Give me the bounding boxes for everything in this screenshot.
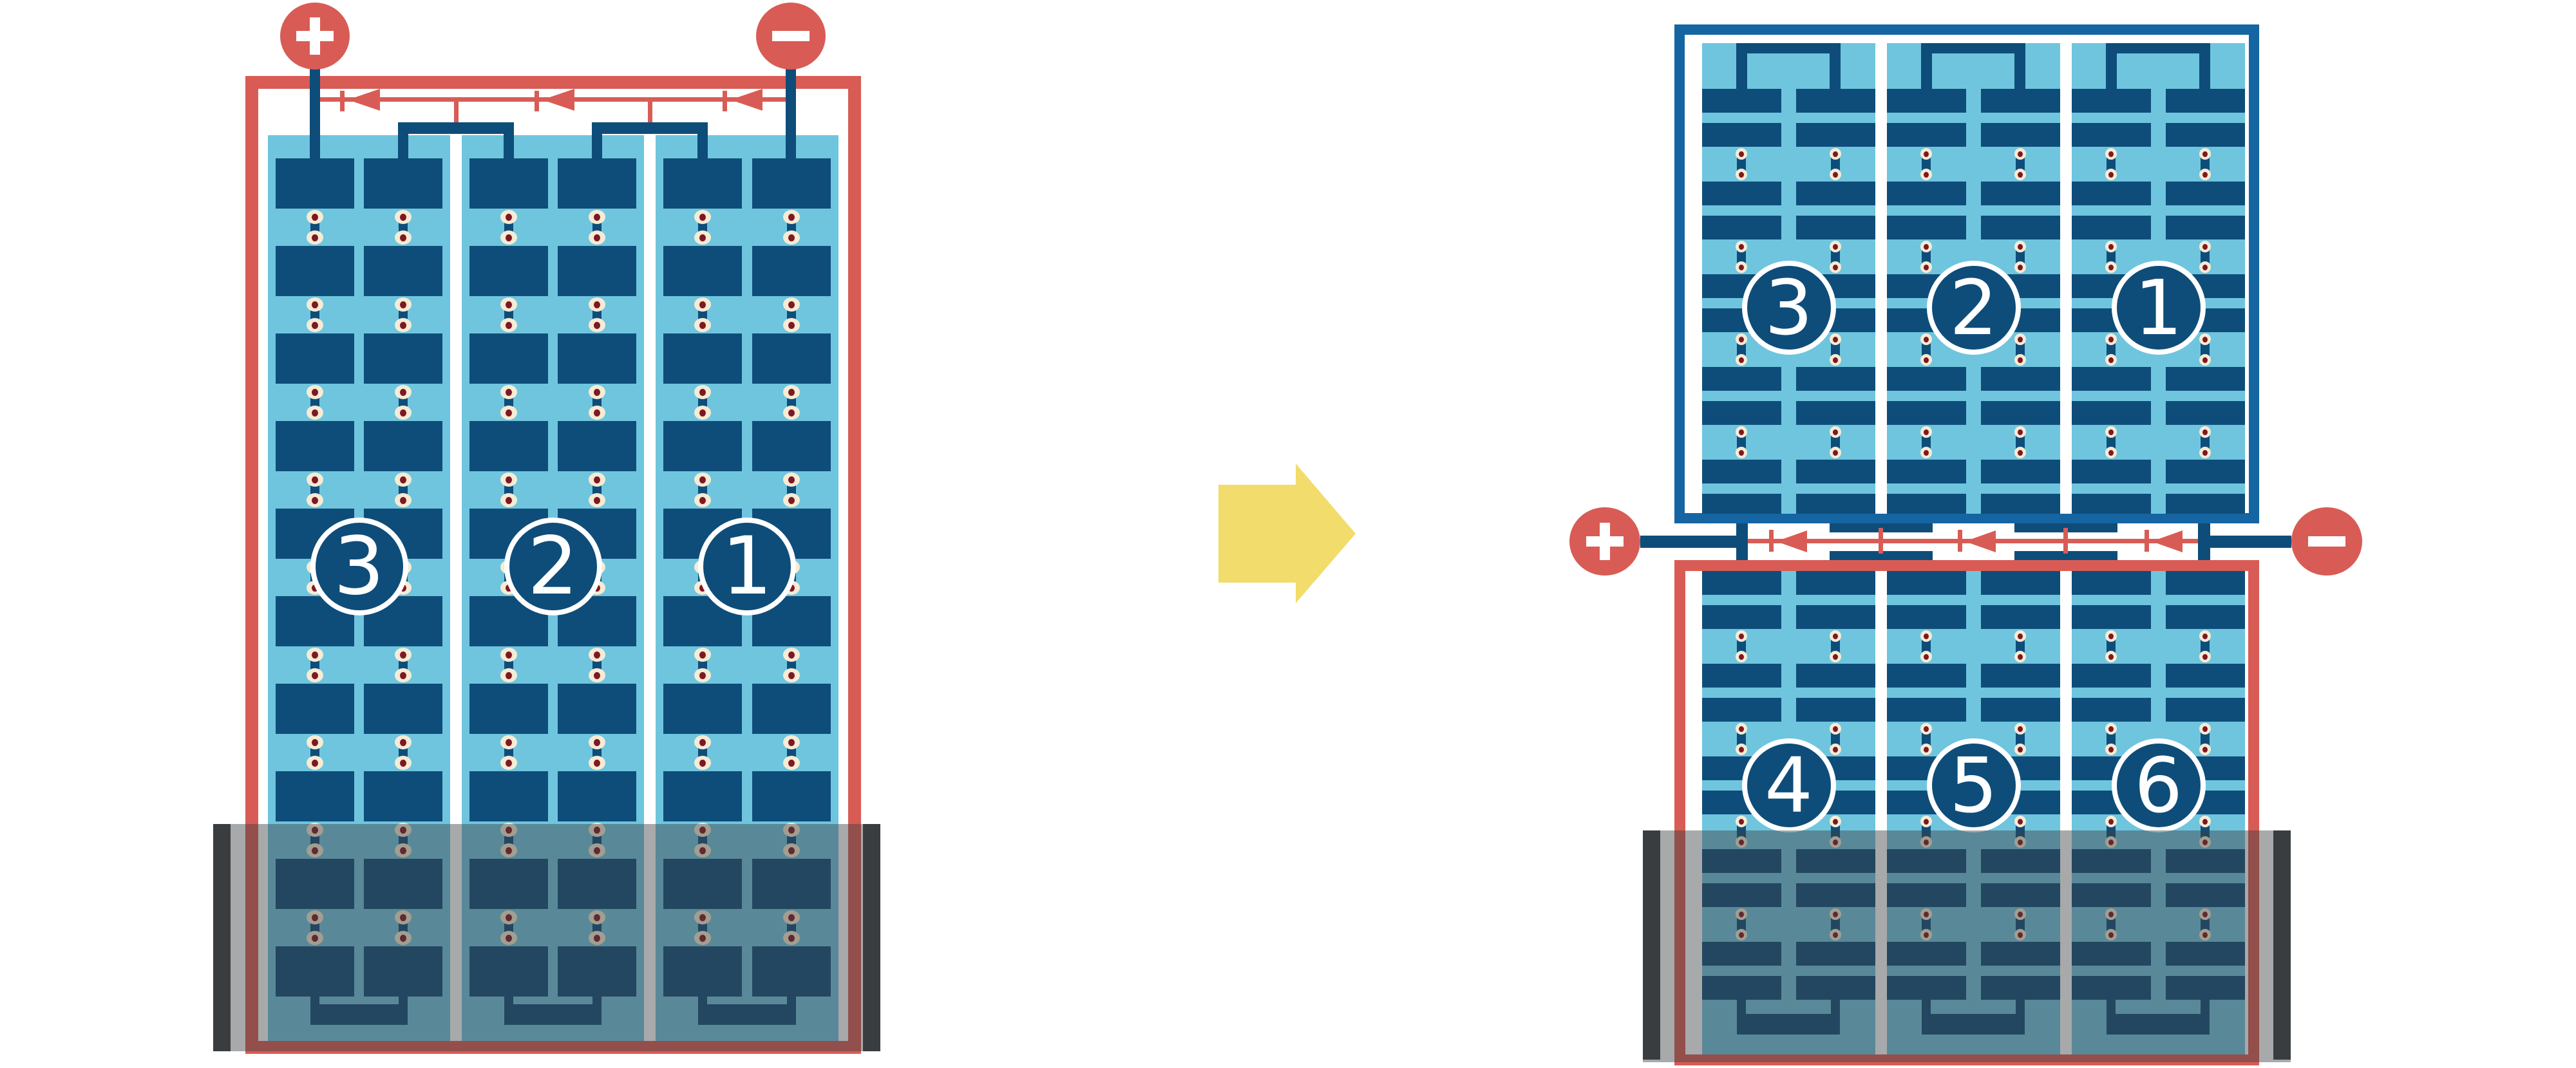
rivet-pin-icon [2018,747,2023,753]
plate [2166,89,2245,113]
rivet-pin-icon [1739,337,1744,342]
battery-holder-overlay [1643,830,2291,1062]
plate [2166,401,2245,425]
rivet-pin-icon [2108,151,2114,157]
plate [1796,698,1875,722]
plate [1702,123,1781,147]
rivet-pin-icon [2018,450,2023,456]
positive-terminal-bar [1640,536,1736,548]
rivet-pin-icon [2108,337,2114,342]
plate [1887,182,1966,205]
plate [1981,367,2060,391]
rivet-pin-icon [2108,819,2114,825]
plate [1796,401,1875,425]
plate [1887,460,1966,483]
plate [2072,698,2151,722]
rivet-pin-icon [1833,633,1838,639]
current-branch-tick [1879,528,1883,554]
current-tick [2145,530,2149,552]
rivet-pin-icon [2202,726,2208,732]
current-arrowhead-icon [1776,530,1807,552]
cell-separator [2060,43,2072,514]
rivet-pin-icon [2018,265,2023,270]
negative-terminal-bar [2210,536,2291,548]
plate [2166,460,2245,483]
plate [1887,605,1966,629]
plate [1702,698,1781,722]
plate [1887,698,1966,722]
top-strap-bar [2106,43,2210,53]
plate [1887,123,1966,147]
rivet-pin-icon [1739,357,1744,363]
glyph-bar [2308,536,2345,547]
rivet-pin-icon [1833,726,1838,732]
plate [1702,89,1781,113]
rivet-pin-icon [1833,151,1838,157]
rivet-pin-icon [2108,357,2114,363]
plate [2072,401,2151,425]
plate [1796,664,1875,688]
rivet-pin-icon [1739,747,1744,753]
rivet-pin-icon [1739,429,1744,435]
rivet-pin-icon [2202,265,2208,270]
positive-terminal [1569,507,1640,576]
plate [1702,605,1781,629]
rivet-pin-icon [2108,429,2114,435]
rivet-pin-icon [1739,633,1744,639]
top-strap-bar [1921,43,2025,53]
top-strap-leg [2014,52,2025,89]
rivet-pin-icon [2202,357,2208,363]
rivet-pin-icon [1833,819,1838,825]
plate [2166,123,2245,147]
rivet-pin-icon [1739,819,1744,825]
rivet-pin-icon [2202,244,2208,250]
plate [1702,494,1781,514]
rivet-pin-icon [1833,450,1838,456]
top-strap-leg [1921,52,1932,89]
rivet-pin-icon [1924,654,1929,660]
rivet-pin-icon [2202,172,2208,178]
plate [1887,89,1966,113]
rivet-pin-icon [2202,429,2208,435]
plate [2166,571,2245,595]
plate [1887,494,1966,514]
rivet-pin-icon [1924,747,1929,753]
cell-number-badge: 1 [2112,261,2206,355]
plate [2072,605,2151,629]
plate [1981,664,2060,688]
positive-terminal-tab [1736,523,1748,560]
plate [1981,123,2060,147]
rivet-pin-icon [1739,726,1744,732]
plate [1887,216,1966,239]
rivet-pin-icon [2108,747,2114,753]
rivet-pin-icon [2018,726,2023,732]
plate [2072,182,2151,205]
current-tick [1769,530,1774,552]
glyph-bar [1600,523,1610,560]
rivet-pin-icon [2018,654,2023,660]
rivet-pin-icon [1924,357,1929,363]
rivet-pin-icon [1924,151,1929,157]
rivet-pin-icon [1924,726,1929,732]
rivet-pin-icon [2018,357,2023,363]
rivet-pin-icon [2018,244,2023,250]
plate [1981,698,2060,722]
plate [1796,89,1875,113]
top-strap-leg [1830,52,1841,89]
rivet-pin-icon [2018,151,2023,157]
rivet-pin-icon [1833,357,1838,363]
top-strap-leg [2106,52,2117,89]
rivet-pin-icon [2202,654,2208,660]
plate [1981,182,2060,205]
top-strap-leg [1736,52,1747,89]
rivet-pin-icon [2108,265,2114,270]
rivet-pin-icon [1924,244,1929,250]
plate [1796,494,1875,514]
plate [2072,571,2151,595]
rivet-pin-icon [2108,654,2114,660]
plate [1887,664,1966,688]
cell-number-badge: 2 [1927,261,2021,355]
plate [1981,89,2060,113]
rivet-pin-icon [1739,151,1744,157]
rivet-pin-icon [2018,172,2023,178]
negative-terminal-tab [2198,523,2210,560]
rivet-pin-icon [1833,172,1838,178]
cell-number-badge: 6 [2112,738,2206,832]
rivet-pin-icon [1833,337,1838,342]
plate [1702,401,1781,425]
plus-icon [1569,507,1640,576]
cell-number-badge: 3 [1742,261,1836,355]
rivet-pin-icon [1739,654,1744,660]
plate [2166,664,2245,688]
rivet-pin-icon [2018,337,2023,342]
top-strap-leg [2199,52,2210,89]
plate [2072,367,2151,391]
rivet-pin-icon [1739,450,1744,456]
rivet-pin-icon [1924,172,1929,178]
rivet-pin-icon [1833,747,1838,753]
plate [1981,494,2060,514]
plate [2072,494,2151,514]
rivet-pin-icon [2108,726,2114,732]
rivet-pin-icon [2108,244,2114,250]
rivet-pin-icon [2202,450,2208,456]
plate [2166,367,2245,391]
cell-number-badge: 4 [1742,738,1836,832]
plate [1981,571,2060,595]
plate [1796,123,1875,147]
cell-number-badge: 5 [1927,738,2021,832]
current-branch-tick [2063,528,2068,554]
current-arrowhead-icon [1965,530,1996,552]
plate [1702,571,1781,595]
rivet-pin-icon [1833,429,1838,435]
rivet-pin-icon [2202,337,2208,342]
plate [1796,460,1875,483]
top-strap-bar [1736,43,1841,53]
plate [1887,571,1966,595]
plate [2166,494,2245,514]
rivet-pin-icon [2108,633,2114,639]
plate [1702,664,1781,688]
rivet-pin-icon [1739,172,1744,178]
rivet-pin-icon [1924,819,1929,825]
plate [1796,571,1875,595]
rivet-pin-icon [2108,450,2114,456]
minus-icon [2291,507,2362,576]
plate [2072,460,2151,483]
current-tick [1958,530,1962,552]
rivet-pin-icon [2108,172,2114,178]
plate [1702,182,1781,205]
plate [2166,182,2245,205]
plate [2072,216,2151,239]
rivet-pin-icon [2018,819,2023,825]
rivet-pin-icon [2202,747,2208,753]
rivet-pin-icon [1924,429,1929,435]
plate [1981,216,2060,239]
battery-diagram-canvas: 321 321456 [0,0,2576,1068]
rivet-pin-icon [1924,265,1929,270]
plate [1796,182,1875,205]
current-arrowhead-icon [2152,530,2183,552]
rivet-pin-icon [2018,429,2023,435]
right-battery-diagram: 321456 [0,0,2576,1068]
rivet-pin-icon [2018,633,2023,639]
plate [2166,216,2245,239]
rivet-pin-icon [2202,819,2208,825]
plate [2166,605,2245,629]
rivet-pin-icon [1739,265,1744,270]
plate [1796,367,1875,391]
rivet-pin-icon [1833,265,1838,270]
plate [1887,401,1966,425]
plate [1981,605,2060,629]
holder-end-bar [2273,830,2291,1060]
plate [2166,698,2245,722]
rivet-pin-icon [2202,633,2208,639]
plate [1796,216,1875,239]
holder-end-bar [1643,830,1660,1060]
plate [1702,216,1781,239]
rivet-pin-icon [1924,633,1929,639]
plate [1981,460,2060,483]
negative-terminal [2291,507,2362,576]
plate [2072,664,2151,688]
rivet-pin-icon [1739,244,1744,250]
plate [1702,367,1781,391]
rivet-pin-icon [1924,450,1929,456]
plate [1981,401,2060,425]
plate [1702,460,1781,483]
rivet-pin-icon [1833,244,1838,250]
rivet-pin-icon [1924,337,1929,342]
cell-separator [1875,43,1887,514]
rivet-pin-icon [1833,654,1838,660]
plate [1887,367,1966,391]
plate [1796,605,1875,629]
rivet-pin-icon [2202,151,2208,157]
plate [2072,123,2151,147]
plate [2072,89,2151,113]
